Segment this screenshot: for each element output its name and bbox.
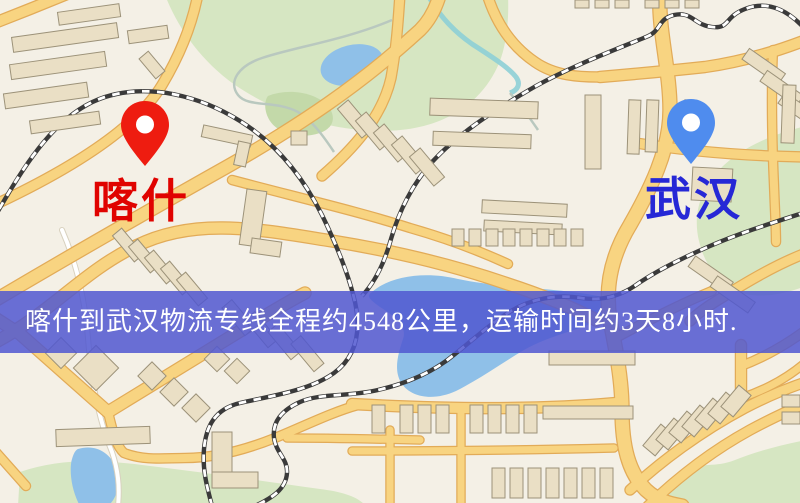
map-image <box>0 0 800 503</box>
route-info-text: 喀什到武汉物流专线全程约4548公里，运输时间约3天8小时. <box>25 309 738 335</box>
pin-hole <box>136 116 154 134</box>
origin-pin <box>119 100 171 168</box>
route-info-banner: 喀什到武汉物流专线全程约4548公里，运输时间约3天8小时. <box>0 291 800 353</box>
location-pin-icon <box>119 100 171 168</box>
pin-hole <box>682 114 700 132</box>
route-map: 喀什 武汉 喀什到武汉物流专线全程约4548公里，运输时间约3天8小时. <box>0 0 800 503</box>
destination-label: 武汉 <box>645 177 743 223</box>
location-pin-icon <box>665 98 717 166</box>
origin-label: 喀什 <box>92 179 190 225</box>
destination-pin <box>665 98 717 166</box>
